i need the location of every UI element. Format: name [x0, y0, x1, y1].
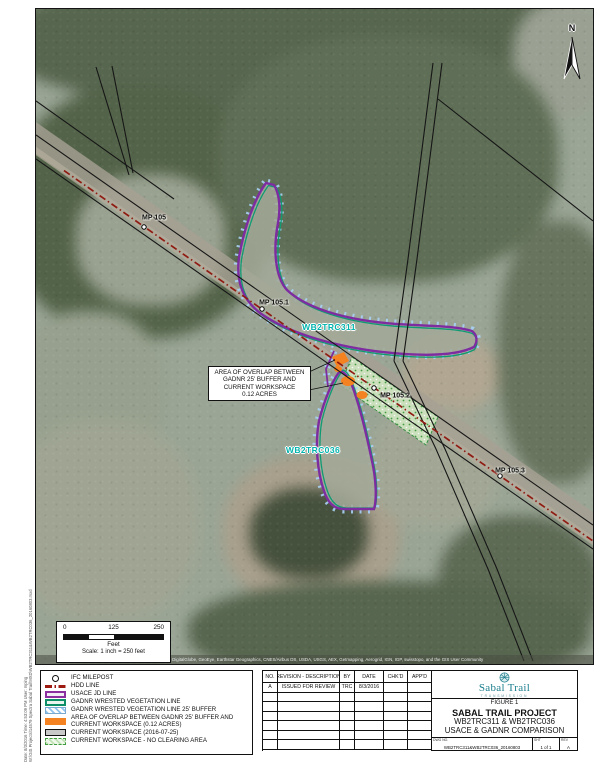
- revision-cell: [340, 702, 355, 712]
- wetland-label-wb2trc311: WB2TRC311: [302, 322, 356, 332]
- title-block-titles: FIGURE 1 SABAL TRAIL PROJECT WB2TRC311 &…: [432, 699, 577, 738]
- scale-bar-graphic: [63, 634, 164, 640]
- rev-label: REV: [561, 738, 568, 742]
- callout-line-3: CURRENT WORKSPACE: [224, 384, 296, 391]
- overlap-callout: AREA OF OVERLAP BETWEEN GADNR 25' BUFFER…: [208, 366, 311, 401]
- milepost-circle-105: [142, 225, 146, 229]
- revision-cell: [408, 693, 432, 703]
- callout-line-2: GADNR 25' BUFFER AND: [223, 376, 296, 383]
- milepost-label-105-2: MP 105.2: [380, 393, 410, 400]
- legend-item: CURRENT WORKSPACE - NO CLEARING AREA: [45, 738, 248, 745]
- milepost-swatch: [45, 675, 66, 682]
- sheet-label: SHT: [534, 738, 541, 742]
- scale-bar: 0 125 250 Feet Scale: 1 inch = 250 feet: [56, 621, 171, 663]
- scale-tick-0: 0: [63, 624, 67, 631]
- revision-cell: [278, 693, 340, 703]
- brand-logo: Sabal Trail TRANSMISSION: [432, 671, 577, 699]
- milepost-icon: [52, 675, 59, 682]
- parcel-spur-1: [96, 67, 129, 175]
- revision-cell: [340, 731, 355, 741]
- revision-cell: [278, 721, 340, 731]
- revision-cell: APP'D: [408, 671, 432, 683]
- legend-item: CURRENT WORKSPACE (2016-07-25): [45, 729, 248, 736]
- revision-cell: ISSUED FOR REVIEW: [278, 683, 340, 693]
- revision-cell: [355, 712, 384, 722]
- revision-cell: TRC: [340, 683, 355, 693]
- revision-cell: [384, 740, 408, 750]
- map-frame: MP 105 MP 105.1 MP 105.2 MP 105.3 WB2TRC…: [35, 8, 594, 665]
- revision-cell: [278, 712, 340, 722]
- revision-cell: REVISION - DESCRIPTION: [278, 671, 340, 683]
- revision-cell: [408, 702, 432, 712]
- dwg-no-value: WB2TRC311&WB2TRC036_20160803: [432, 745, 532, 750]
- revision-cell: [408, 721, 432, 731]
- milepost-circle-105-2: [372, 386, 376, 390]
- milepost-label-105-3: MP 105.3: [495, 468, 525, 475]
- north-label: N: [569, 23, 576, 33]
- figure-subtitle-2: USACE & GADNR COMPARISON: [432, 727, 577, 736]
- revision-cell: [384, 712, 408, 722]
- north-arrow: [564, 37, 580, 79]
- revision-cell: [384, 731, 408, 741]
- legend-item: IFC MILEPOST: [45, 675, 248, 682]
- sabal-trail-logo-icon: [499, 672, 510, 683]
- rev-cell: REV A: [560, 738, 577, 751]
- scale-tick-mid: 125: [108, 624, 119, 631]
- revision-cell: [355, 721, 384, 731]
- legend-label: USACE JD LINE: [71, 691, 116, 698]
- workspace-line-lower: [36, 159, 593, 549]
- revision-cell: [340, 712, 355, 722]
- plot-metadata-line2: W:\GIS Projects\14579 Spectra Sabal Trai…: [28, 592, 33, 762]
- legend-label: GADNR WRESTED VEGETATION LINE 25' BUFFER: [71, 707, 216, 714]
- road-line-right: [403, 63, 442, 361]
- legend-item: HDD LINE: [45, 683, 248, 690]
- plot-metadata: Date: 8/3/2016 Time: 4:53:09 PM User: mp…: [23, 592, 33, 762]
- legend-item: AREA OF OVERLAP BETWEEN GADNR 25' BUFFER…: [45, 715, 248, 728]
- revision-cell: [355, 702, 384, 712]
- boundary-lines: [36, 63, 593, 661]
- revision-cell: [278, 731, 340, 741]
- legend-label: GADNR WRESTED VEGETATION LINE: [71, 699, 180, 706]
- legend: IFC MILEPOSTHDD LINEUSACE JD LINEGADNR W…: [40, 670, 253, 755]
- sheet-value: 1 of 1: [533, 745, 559, 750]
- figure-page: Date: 8/3/2016 Time: 4:53:09 PM User: mp…: [0, 0, 600, 777]
- revision-cell: DATE: [355, 671, 384, 683]
- scale-bar-ticks: 0 125 250: [63, 624, 164, 633]
- revision-cell: [263, 740, 278, 750]
- title-block-footer: DWG NO. WB2TRC311&WB2TRC036_20160803 SHT…: [432, 738, 577, 751]
- legend-label: IFC MILEPOST: [71, 675, 113, 682]
- map-overlay: [36, 9, 593, 664]
- callout-line-4: 0.12 ACRES: [242, 391, 277, 398]
- revision-cell: 8/3/2016: [355, 683, 384, 693]
- revision-cell: [263, 702, 278, 712]
- wetland-label-wb2trc036: WB2TRC036: [286, 445, 340, 455]
- legend-item: GADNR WRESTED VEGETATION LINE: [45, 699, 248, 706]
- revision-cell: [340, 721, 355, 731]
- road-line-left: [394, 63, 433, 361]
- overlap-swatch: [45, 718, 66, 725]
- figure-label: FIGURE 1: [432, 700, 577, 708]
- revision-cell: [263, 731, 278, 741]
- revision-cell: [408, 712, 432, 722]
- revision-cell: [263, 721, 278, 731]
- revision-cell: [384, 693, 408, 703]
- brand-name: Sabal Trail: [479, 683, 530, 694]
- noclear-swatch: [45, 738, 66, 745]
- revision-cell: BY: [340, 671, 355, 683]
- legend-label: CURRENT WORKSPACE (2016-07-25): [71, 730, 178, 737]
- legend-label: AREA OF OVERLAP BETWEEN GADNR 25' BUFFER…: [71, 715, 248, 728]
- revision-cell: [340, 693, 355, 703]
- hdd-swatch: [45, 685, 66, 687]
- revision-cell: [384, 683, 408, 693]
- revision-cell: [340, 740, 355, 750]
- revision-cell: [384, 702, 408, 712]
- revision-cell: NO.: [263, 671, 278, 683]
- callout-line-1: AREA OF OVERLAP BETWEEN: [215, 369, 305, 376]
- rev-value: A: [560, 745, 577, 750]
- revision-cell: [355, 693, 384, 703]
- usace-swatch: [45, 691, 66, 698]
- revision-cell: [278, 740, 340, 750]
- revision-cell: [408, 731, 432, 741]
- dwg-no-cell: DWG NO. WB2TRC311&WB2TRC036_20160803: [432, 738, 533, 751]
- revision-table: NO.REVISION - DESCRIPTIONBYDATECHK'DAPP'…: [262, 670, 431, 751]
- milepost-circle-105-1: [260, 307, 264, 311]
- buffer-swatch: [45, 707, 66, 714]
- legend-item: USACE JD LINE: [45, 691, 248, 698]
- overlap-area-3: [357, 391, 368, 399]
- legend-label: CURRENT WORKSPACE - NO CLEARING AREA: [71, 738, 207, 745]
- scale-tick-max: 250: [153, 624, 164, 631]
- gadnr-swatch: [45, 699, 66, 706]
- revision-cell: [408, 683, 432, 693]
- legend-label: HDD LINE: [71, 683, 99, 690]
- scale-unit: Feet: [57, 641, 170, 648]
- milepost-label-105-1: MP 105.1: [259, 300, 289, 307]
- revision-cell: [263, 693, 278, 703]
- dwg-no-label: DWG NO.: [433, 738, 448, 742]
- brand-tagline: TRANSMISSION: [481, 694, 528, 698]
- legend-item: GADNR WRESTED VEGETATION LINE 25' BUFFER: [45, 707, 248, 714]
- revision-cell: A: [263, 683, 278, 693]
- sheet-cell: SHT 1 of 1: [533, 738, 560, 751]
- revision-cell: CHK'D: [384, 671, 408, 683]
- revision-cell: [384, 721, 408, 731]
- revision-cell: [263, 712, 278, 722]
- revision-cell: [355, 731, 384, 741]
- workspace-swatch: [45, 729, 66, 736]
- scale-text: Scale: 1 inch = 250 feet: [57, 649, 170, 655]
- legend-items: IFC MILEPOSTHDD LINEUSACE JD LINEGADNR W…: [45, 675, 248, 744]
- revision-cell: [355, 740, 384, 750]
- milepost-label-105: MP 105: [142, 215, 166, 222]
- revision-cell: [278, 702, 340, 712]
- title-block: Sabal Trail TRANSMISSION FIGURE 1 SABAL …: [431, 670, 578, 751]
- parcel-line-topright: [438, 99, 593, 221]
- revision-cell: [408, 740, 432, 750]
